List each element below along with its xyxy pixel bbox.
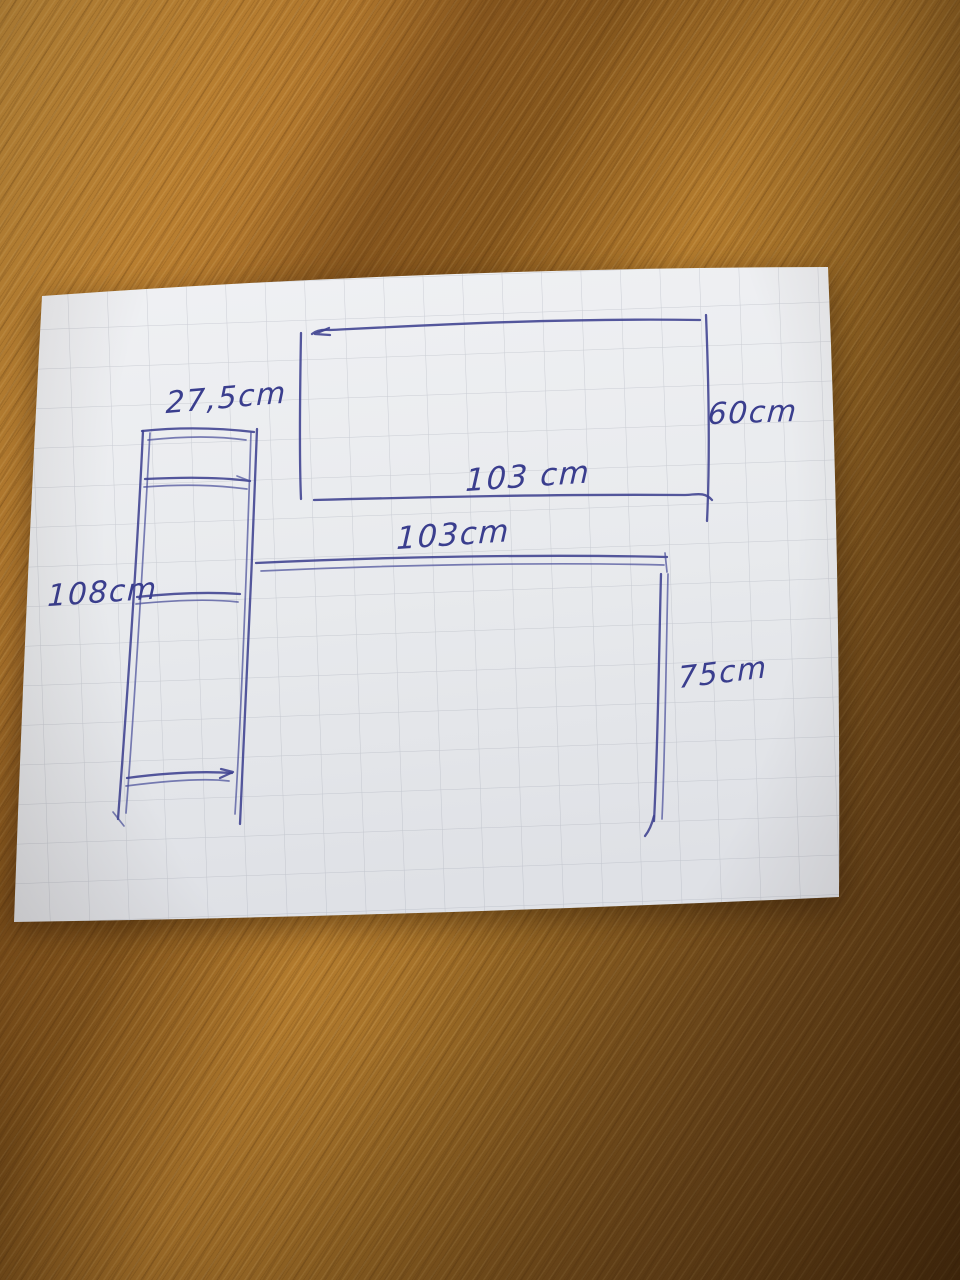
sketch-sheet-svg bbox=[0, 0, 960, 1280]
panel-height-label: 60cm bbox=[707, 394, 799, 432]
photo-scene: 27,5cm 60cm 103 cm 103cm 108cm 75cm bbox=[0, 0, 960, 1280]
